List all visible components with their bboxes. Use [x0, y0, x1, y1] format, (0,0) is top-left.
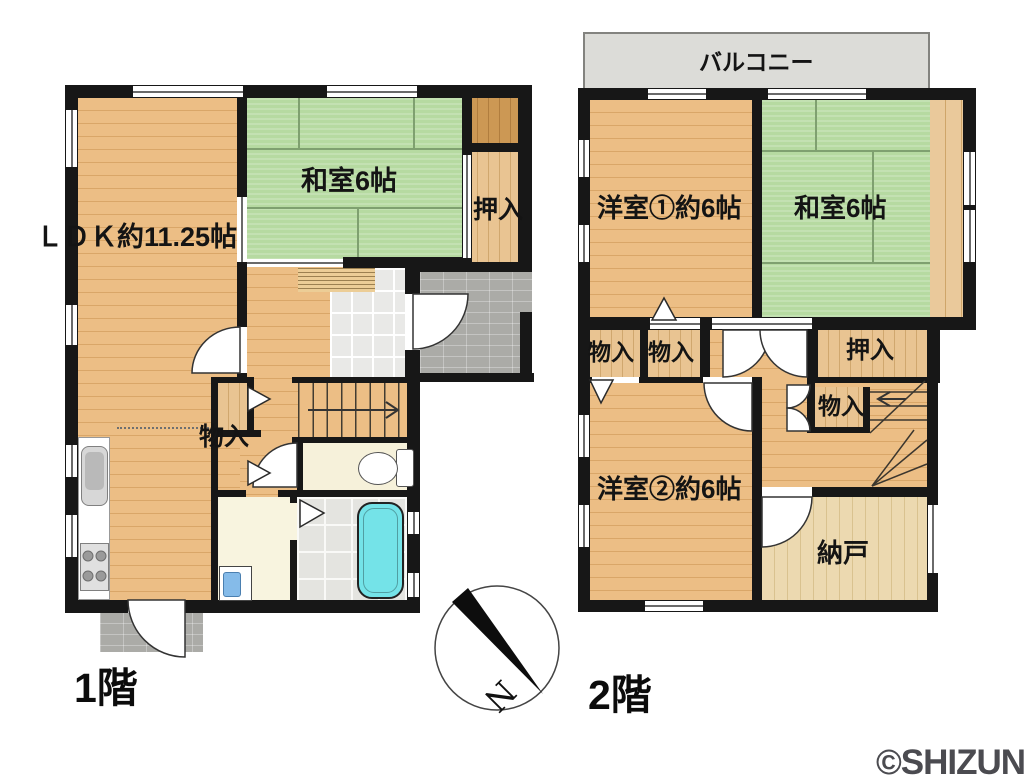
plan-symbol-overlay: N: [0, 0, 1024, 781]
floor-plan-canvas: N ＬＤＫ約11.25帖 和室6帖 押入 物入 1階 バルコニー 洋室①約6帖 …: [0, 0, 1024, 781]
room-label-nando: 納戸: [817, 540, 869, 567]
door-arc-hall-right: [760, 330, 807, 377]
floor2-title: 2階: [588, 674, 652, 717]
door-arc-yoshitsu2: [704, 383, 752, 431]
room-label-ldk: ＬＤＫ約11.25帖: [36, 223, 237, 251]
compass: N: [435, 586, 559, 719]
door-triangle: [652, 298, 676, 320]
door-triangle: [300, 500, 324, 527]
room-label-yoshitsu2: 洋室②約6帖: [597, 476, 741, 503]
door-arc-nando: [762, 497, 812, 547]
room-label-monoire-a: 物入: [588, 340, 634, 364]
door-bifold-upper: [787, 385, 810, 408]
room-label-balcony: バルコニー: [699, 50, 814, 74]
watermark: ©SHIZUNAVI: [876, 743, 1024, 781]
stove-burners: [83, 551, 106, 581]
room-label-yoshitsu1: 洋室①約6帖: [597, 195, 741, 222]
door-bifold-lower: [787, 408, 810, 431]
door-arc-ldk: [192, 327, 240, 373]
floor1-title: 1階: [74, 667, 138, 710]
stairs-floor2-treads: [870, 381, 927, 486]
door-triangle: [248, 387, 270, 411]
room-label-monoire-b: 物入: [648, 340, 694, 364]
door-arc-backdoor: [128, 600, 185, 657]
room-label-oshiire2: 押入: [846, 338, 894, 363]
door-triangle: [590, 380, 613, 403]
door-arc-toilet: [253, 443, 297, 487]
room-label-washitsu2: 和室6帖: [794, 195, 886, 222]
room-label-washitsu1: 和室6帖: [301, 167, 397, 195]
room-label-monoire-c: 物入: [818, 394, 864, 418]
room-label-monoire1: 物入: [199, 424, 249, 450]
room-label-oshiire1: 押入: [473, 197, 523, 223]
door-arc-entrance: [413, 294, 468, 349]
